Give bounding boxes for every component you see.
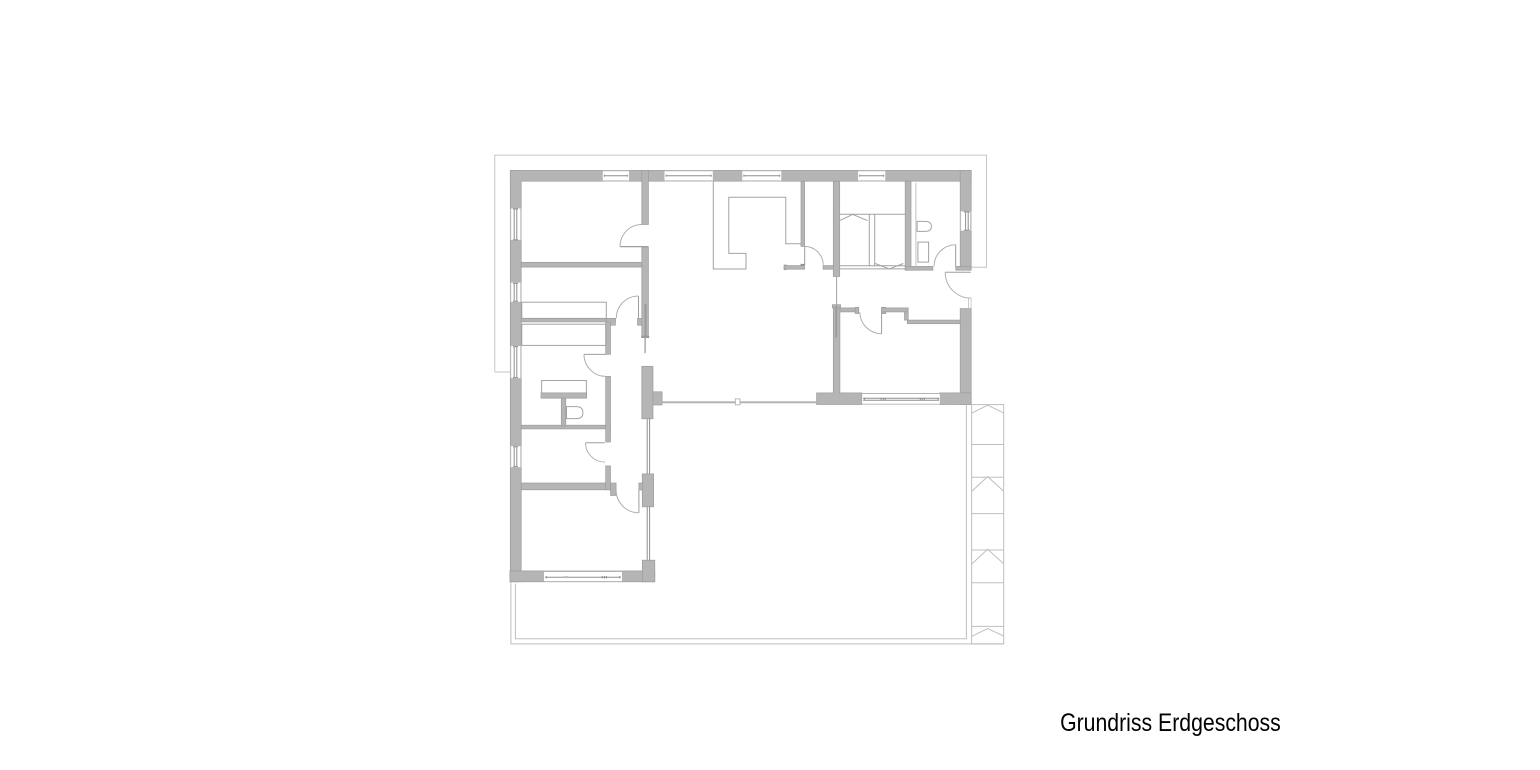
svg-text:Grundriss Erdgeschoss: Grundriss Erdgeschoss (1060, 709, 1281, 737)
